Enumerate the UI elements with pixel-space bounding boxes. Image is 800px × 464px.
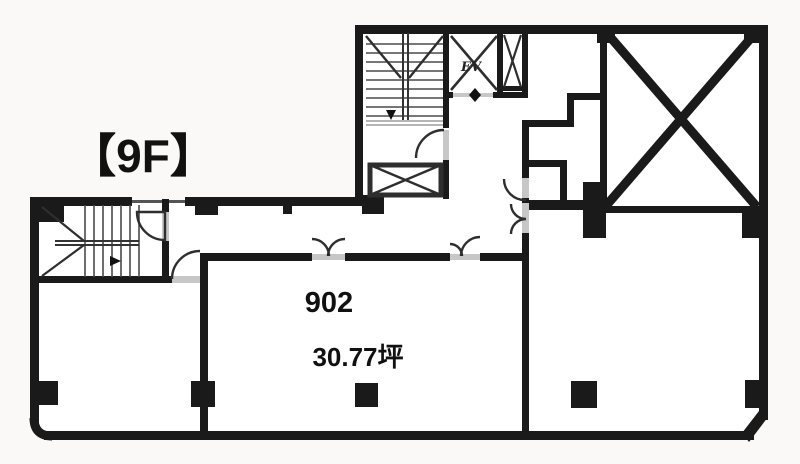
room-number-label: 902 — [305, 287, 353, 319]
floor-plan: EV 【9F】 902 30 — [0, 0, 800, 464]
room-area-label: 30.77坪 — [312, 342, 403, 372]
elevator-label: EV — [460, 60, 483, 75]
floor-plan-drawing: EV 【9F】 902 30 — [0, 0, 800, 464]
floor-label: 【9F】 — [70, 130, 216, 182]
